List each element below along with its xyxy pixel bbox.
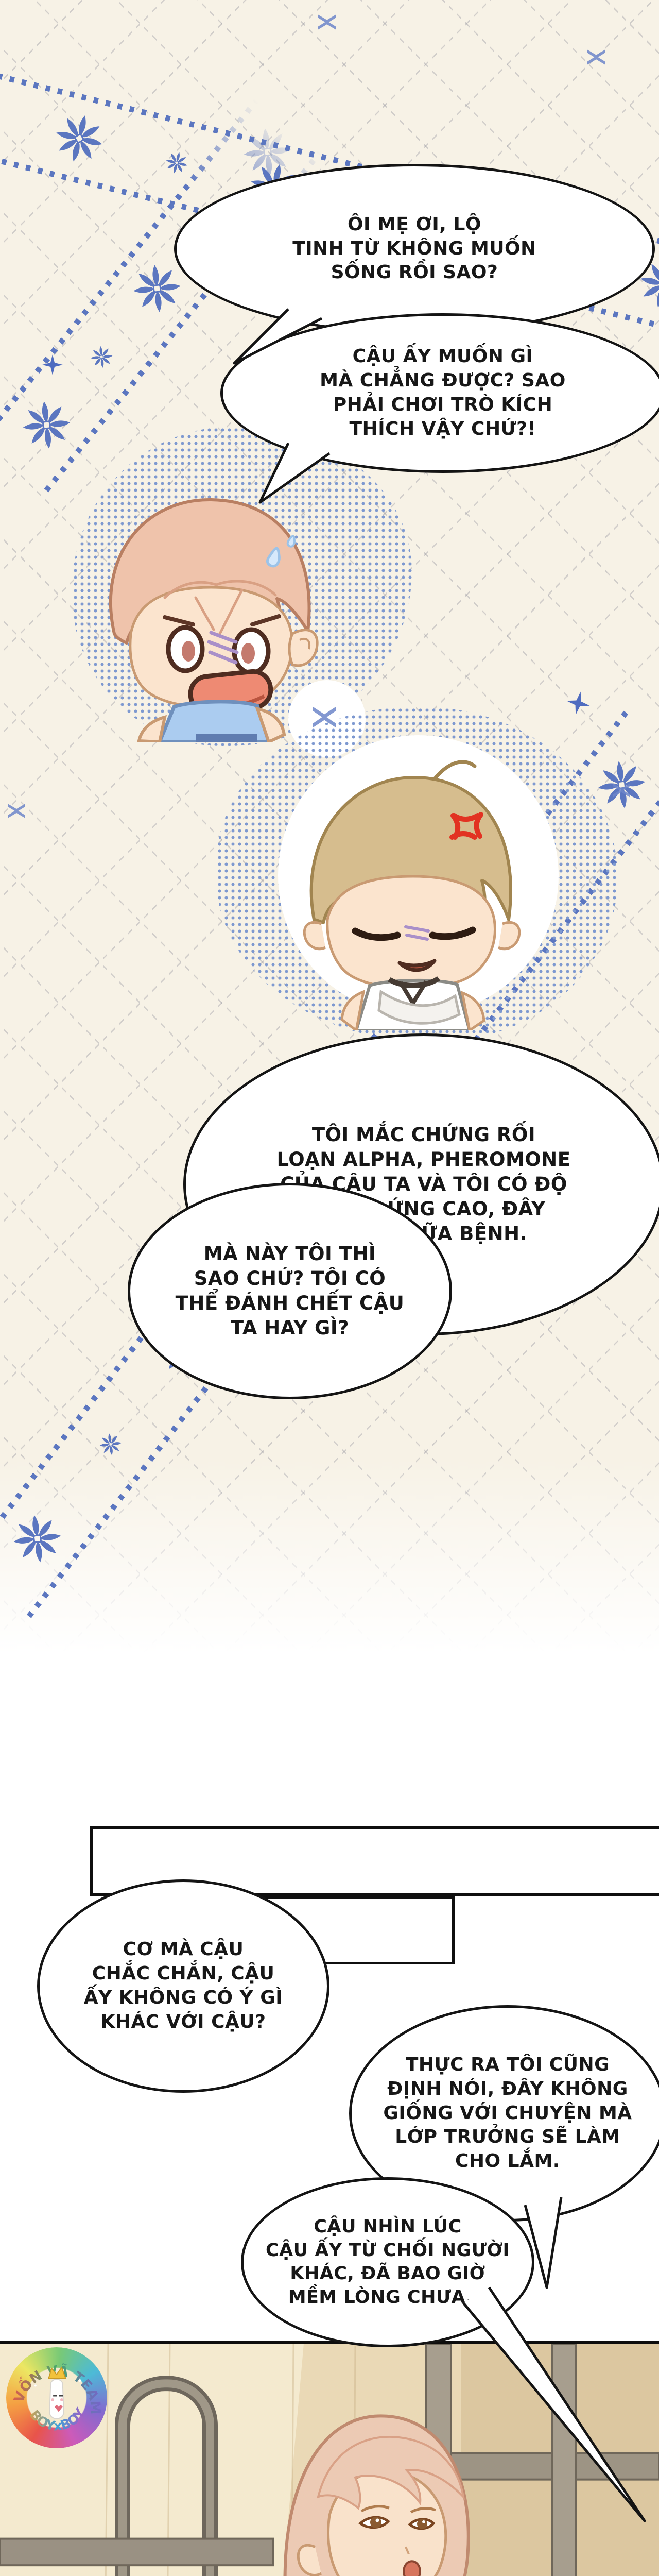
comic-page: VỐN VÃ TEAM BOYxBOY ÔI MẸ ƠI, LỘ TINH TỪ… [0,0,659,2576]
radish-mascot-icon [48,2367,65,2418]
speech-bubble-6-text: THỰC RA TÔI CŨNG ĐỊNH NÓI, ĐÂY KHÔNG GIỐ… [352,2053,659,2174]
speech-bubble-7-text: CẬU NHÌN LÚC CẬU ẤY TỪ CHỐI NGƯỜI KHÁC, … [244,2215,532,2309]
speech-bubble-2-text: CẬU ẤY MUỐN GÌ MÀ CHẲNG ĐƯỢC? SAO PHẢI C… [223,345,659,441]
chibi-pink-hair-shocked [88,479,329,742]
snowflake-icon [85,340,118,374]
speech-bubble-4: MÀ NÀY TÔI THÌ SAO CHỨ? TÔI CÓ THỂ ĐÁNH … [128,1183,452,1399]
speech-bubble-1: ÔI MẸ ƠI, LỘ TINH TỪ KHÔNG MUỐN SỐNG RỒI… [174,164,655,334]
snowflake-icon [94,1428,127,1461]
speech-bubble-4-text: MÀ NÀY TÔI THÌ SAO CHỨ? TÔI CÓ THỂ ĐÁNH … [130,1242,449,1341]
snowflake-icon [48,107,110,170]
speech-bubble-5-text: CƠ MÀ CẬU CHẮC CHẮN, CẬU ẤY KHÔNG CÓ Ý G… [40,1938,327,2034]
chibi-tan-hair-annoyed [278,750,546,1030]
speech-bubble-1-text: ÔI MẸ ƠI, LỘ TINH TỪ KHÔNG MUỐN SỐNG RỒI… [177,213,652,285]
speech-bubble-2: CẬU ẤY MUỐN GÌ MÀ CHẲNG ĐƯỢC? SAO PHẢI C… [220,313,659,473]
watermark-logo: VỐN VÃ TEAM BOYxBOY [6,2347,107,2448]
speech-bubble-5: CƠ MÀ CẬU CHẮC CHẮN, CẬU ẤY KHÔNG CÓ Ý G… [37,1879,329,2093]
speech-bubble-7: CẬU NHÌN LÚC CẬU ẤY TỪ CHỐI NGƯỜI KHÁC, … [241,2177,534,2347]
snowflake-icon [162,148,191,177]
snowflake-icon [1,1502,73,1574]
snowflake-icon [10,389,83,462]
